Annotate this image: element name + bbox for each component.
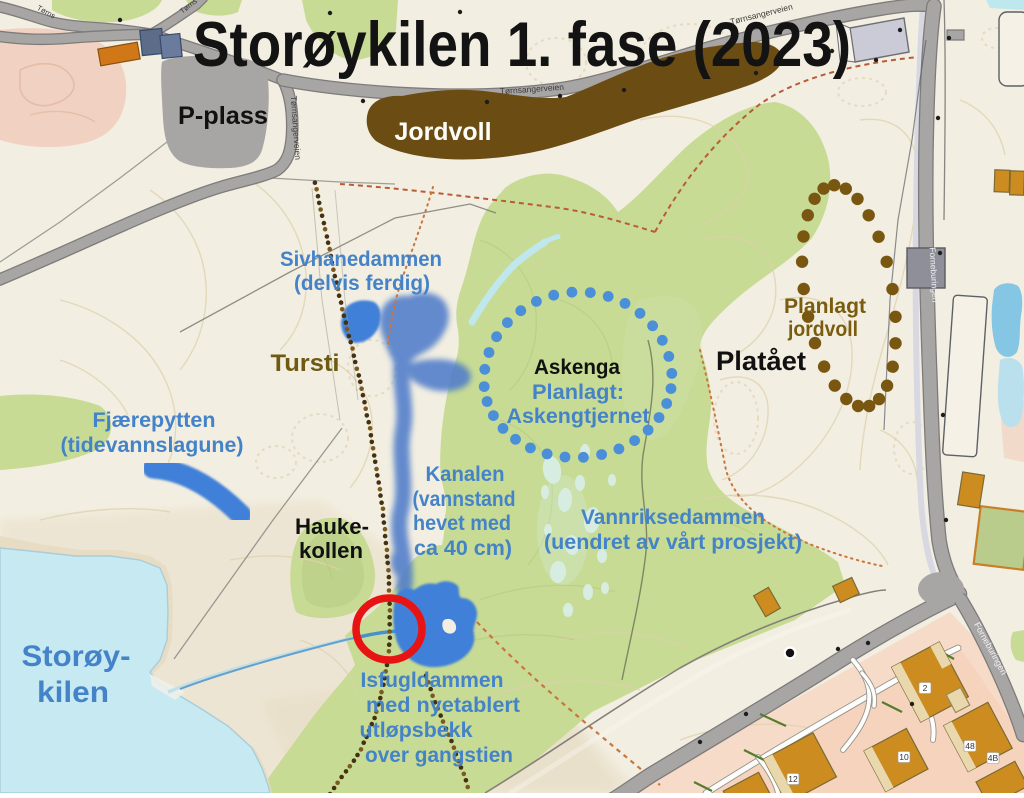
svg-text:12: 12 <box>788 774 798 784</box>
svg-text:Storøykilen 1. fase (2023): Storøykilen 1. fase (2023) <box>193 10 851 80</box>
svg-text:48: 48 <box>965 741 975 751</box>
svg-text:P-plass: P-plass <box>178 102 268 130</box>
svg-text:(delvis ferdig): (delvis ferdig) <box>294 272 430 295</box>
svg-text:jordvoll: jordvoll <box>787 318 858 341</box>
svg-text:kilen: kilen <box>37 676 109 709</box>
svg-text:Isfugldammen: Isfugldammen <box>361 669 504 692</box>
svg-text:Jordvoll: Jordvoll <box>395 118 492 146</box>
svg-text:Hauke-: Hauke- <box>295 514 369 539</box>
svg-text:Planlagt:: Planlagt: <box>532 381 624 404</box>
svg-text:utløpsbekk: utløpsbekk <box>360 719 473 742</box>
svg-text:(vannstand: (vannstand <box>413 488 516 511</box>
svg-text:Platået: Platået <box>716 346 806 376</box>
svg-text:Storøy-: Storøy- <box>22 640 131 673</box>
svg-text:hevet med: hevet med <box>413 512 511 535</box>
svg-text:kollen: kollen <box>299 538 363 563</box>
svg-text:(tidevannslagune): (tidevannslagune) <box>61 434 244 457</box>
svg-text:Kanalen: Kanalen <box>426 463 505 486</box>
svg-text:10: 10 <box>899 752 909 762</box>
svg-text:ca 40 cm): ca 40 cm) <box>414 537 512 560</box>
svg-text:Tursti: Tursti <box>271 350 340 377</box>
svg-text:4B: 4B <box>988 753 999 763</box>
svg-text:Vannriksedammen: Vannriksedammen <box>581 506 765 529</box>
svg-text:med nyetablert: med nyetablert <box>366 694 520 717</box>
svg-text:Askenga: Askenga <box>534 356 620 379</box>
svg-text:2: 2 <box>923 683 928 693</box>
svg-text:Fjærepytten: Fjærepytten <box>93 409 216 432</box>
svg-text:Planlagt: Planlagt <box>784 295 866 318</box>
svg-text:Sivhanedammen: Sivhanedammen <box>280 248 442 271</box>
svg-text:over gangstien: over gangstien <box>365 744 513 767</box>
svg-text:(uendret av vårt prosjekt): (uendret av vårt prosjekt) <box>544 530 802 554</box>
svg-text:Askengtjernet: Askengtjernet <box>507 405 650 428</box>
